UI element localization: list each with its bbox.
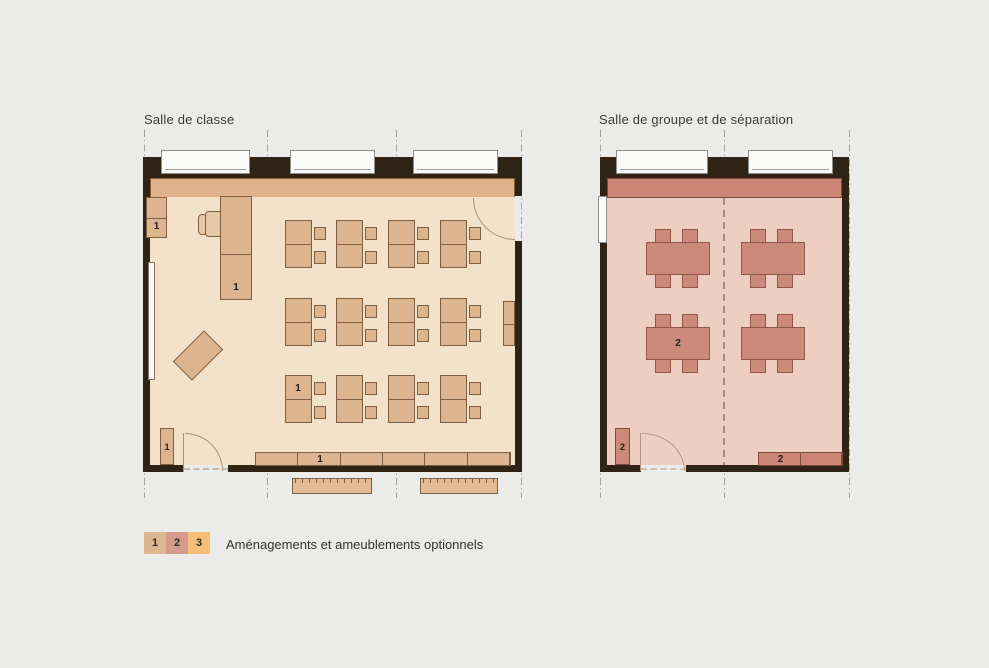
legend: 1 2 3 Aménagements et ameublements optio… [0,0,989,668]
legend-swatch-1: 1 [144,532,166,554]
legend-label: Aménagements et ameublements optionnels [226,537,483,552]
legend-swatch-2: 2 [166,532,188,554]
legend-swatch-3: 3 [188,532,210,554]
floor-plan-canvas: Salle de classe Salle de groupe et de sé… [0,0,989,668]
